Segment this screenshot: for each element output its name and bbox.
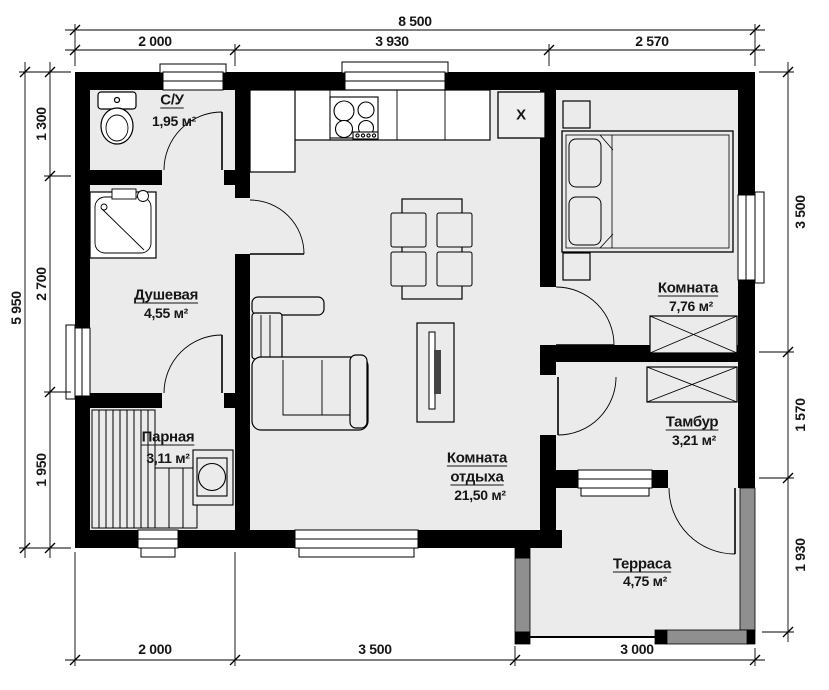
dim-right-seg-3: 1 930 [792,538,808,572]
dim-left-seg-2: 2 700 [33,267,49,301]
dim-bottom-seg-3: 3 000 [620,641,654,657]
room-label-wc: С/У [160,92,183,109]
floor-plan-drawing [0,0,829,690]
room-area-steam: 3,11 м² [146,450,189,466]
room-area-shower: 4,55 м² [144,305,188,321]
room-area-wc: 1,95 м² [152,113,196,129]
room-area-bedroom: 7,76 м² [669,298,713,314]
bed [562,131,733,252]
sauna-stove [193,450,233,505]
dim-left-seg-3: 1 950 [33,453,49,487]
room-area-terrace: 4,75 м² [623,573,667,589]
dim-top-seg-1: 2 000 [138,33,172,49]
room-label-steam: Парная [142,429,195,446]
room-label-terrace: Терраса [613,556,671,573]
dim-top-seg-3: 2 570 [635,33,669,49]
dim-left-total: 5 950 [8,291,24,325]
wardrobe-bedroom [650,316,737,353]
room-label-lounge-2: отдыха [450,469,503,486]
dim-right-seg-2: 1 570 [792,398,808,432]
room-area-lounge: 21,50 м² [454,487,506,503]
tv-stand [417,323,454,422]
dim-bottom-seg-1: 2 000 [138,641,172,657]
boiler-label: X [516,107,526,124]
room-area-vestibule: 3,21 м² [672,432,716,448]
dim-top-seg-2: 3 930 [375,33,409,49]
dim-bottom-seg-2: 3 500 [358,641,392,657]
wardrobe-vestibule [647,367,737,402]
stove [330,97,378,139]
dim-left-seg-1: 1 300 [33,107,49,141]
dim-top-total: 8 500 [398,13,432,29]
toilet [98,92,136,144]
shower-tray [90,189,156,258]
room-label-vestibule: Тамбур [666,414,719,431]
floor-plan: 8 500 2 000 3 930 2 570 5 950 1 300 2 70… [0,0,829,690]
room-label-lounge-1: Комната [447,450,507,467]
room-label-bedroom: Комната [658,280,718,297]
dining-set [391,199,472,299]
dim-right-seg-1: 3 500 [792,195,808,229]
room-label-shower: Душевая [134,287,198,304]
